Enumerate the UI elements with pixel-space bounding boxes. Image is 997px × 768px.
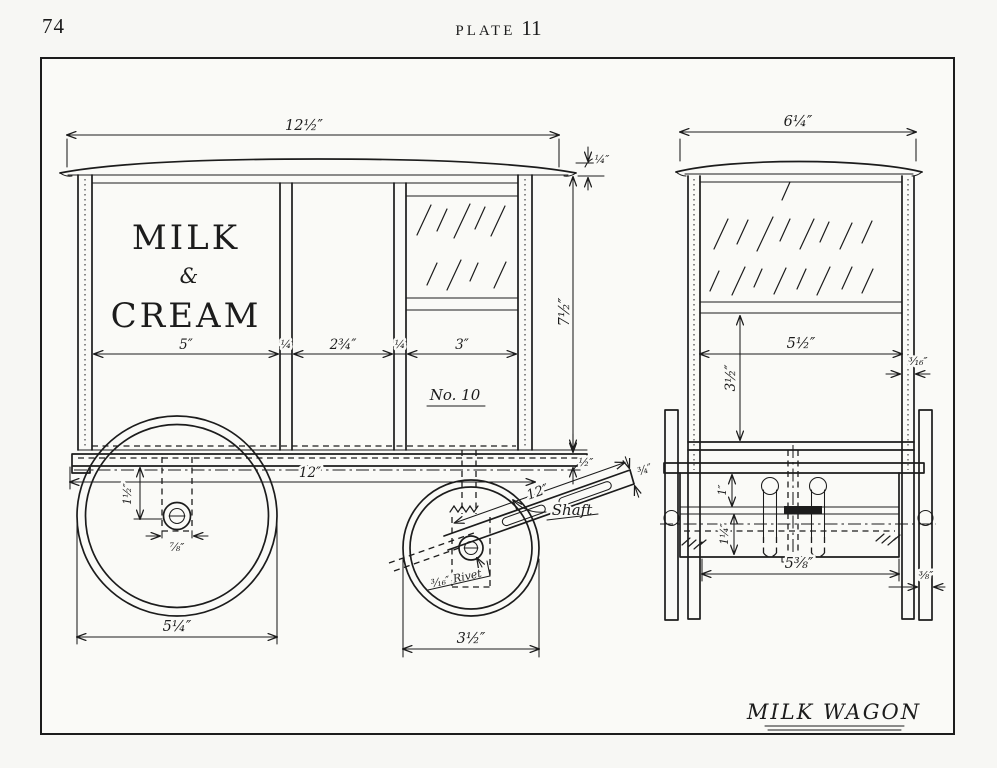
dim-body-height: 7½″	[557, 297, 573, 326]
front-view: 6¼″ 5½″ 3½″ ³⁄₁₆″ 1″ 1¼″ 5⅜″ ⅜″	[660, 114, 945, 620]
model-number: No. 10	[427, 386, 485, 406]
dim-left-stile: ¼	[281, 338, 292, 351]
drawing-title-label: MILK WAGON	[746, 700, 921, 724]
dim-frame-width: 5⅜″	[785, 556, 814, 572]
drawing-title: MILK WAGON	[746, 700, 921, 730]
plate-number: 11	[521, 16, 541, 40]
signage-line2: CREAM	[111, 296, 262, 336]
dim-door-panel: 2¾″	[329, 337, 357, 353]
milk-wagon-drawing: MILK & CREAM No. 10	[42, 59, 953, 733]
dim-shaft-width: ¾″	[636, 461, 655, 479]
front-window-glass-hatching	[710, 182, 873, 295]
side-view: MILK & CREAM No. 10	[60, 118, 655, 657]
axle-clip	[784, 506, 822, 514]
side-signage: MILK & CREAM	[111, 218, 262, 336]
scanned-plate-page: { "page": { "number": "74", "plate_word"…	[0, 0, 997, 768]
front-undercarriage	[660, 445, 936, 562]
dim-right-panel: 3″	[455, 337, 469, 353]
dim-rear-wheel-dia: 5¼″	[163, 619, 192, 635]
side-floor	[72, 446, 587, 473]
plate-word: PLATE	[455, 23, 515, 39]
side-roof	[60, 159, 576, 176]
shaft	[389, 470, 634, 571]
shaft-support-right	[810, 478, 827, 558]
dim-side-overall-width: 12½″	[285, 118, 324, 134]
front-body	[688, 176, 914, 472]
dim-front-wheel-dia: 3½″	[457, 631, 486, 647]
dim-wheel-width: ⅜″	[919, 569, 935, 582]
left-hub	[664, 511, 679, 526]
dim-floor-length: 12″	[299, 465, 321, 481]
dim-front-inner-height: 3½″	[723, 365, 739, 392]
kingbolt-spring	[450, 506, 478, 512]
signage-line1: MILK	[132, 218, 240, 258]
shaft-support-left	[762, 478, 779, 558]
dim-spring-height: 1″	[716, 484, 729, 496]
dim-front-inner-width: 5½″	[787, 336, 816, 352]
dim-right-stile: ¼	[395, 338, 406, 351]
signage-ampersand: &	[180, 264, 199, 288]
dim-left-panel: 5″	[179, 337, 193, 353]
front-roof	[676, 162, 922, 177]
shaft-label: Shaft	[552, 501, 593, 519]
dim-hub-offset: 1½″	[121, 482, 134, 505]
side-dimensions: 12½″ ¼″ 7½″ ½″ 5″ ¼ 2¾″ ¼ 3″	[67, 118, 655, 657]
drawing-frame: MILK & CREAM No. 10	[40, 57, 955, 735]
dim-axle-depth: 1¼″	[718, 522, 731, 545]
axle-end-hatching	[682, 534, 900, 549]
front-dimensions: 6¼″ 5½″ 3½″ ³⁄₁₆″ 1″ 1¼″ 5⅜″ ⅜″	[680, 114, 945, 587]
dim-front-overall-width: 6¼″	[784, 114, 813, 130]
right-hub	[918, 511, 933, 526]
dim-floor-thickness: ½″	[579, 456, 595, 469]
model-number-label: No. 10	[429, 386, 481, 404]
dim-post-thickness: ³⁄₁₆″	[908, 355, 928, 368]
side-window-glass-hatching	[417, 204, 506, 290]
front-wheel	[403, 450, 539, 616]
dim-hub-width: ⅞″	[170, 541, 186, 554]
plate-heading: PLATE11	[0, 16, 997, 41]
dim-roof-thickness: ¼″	[595, 153, 611, 166]
